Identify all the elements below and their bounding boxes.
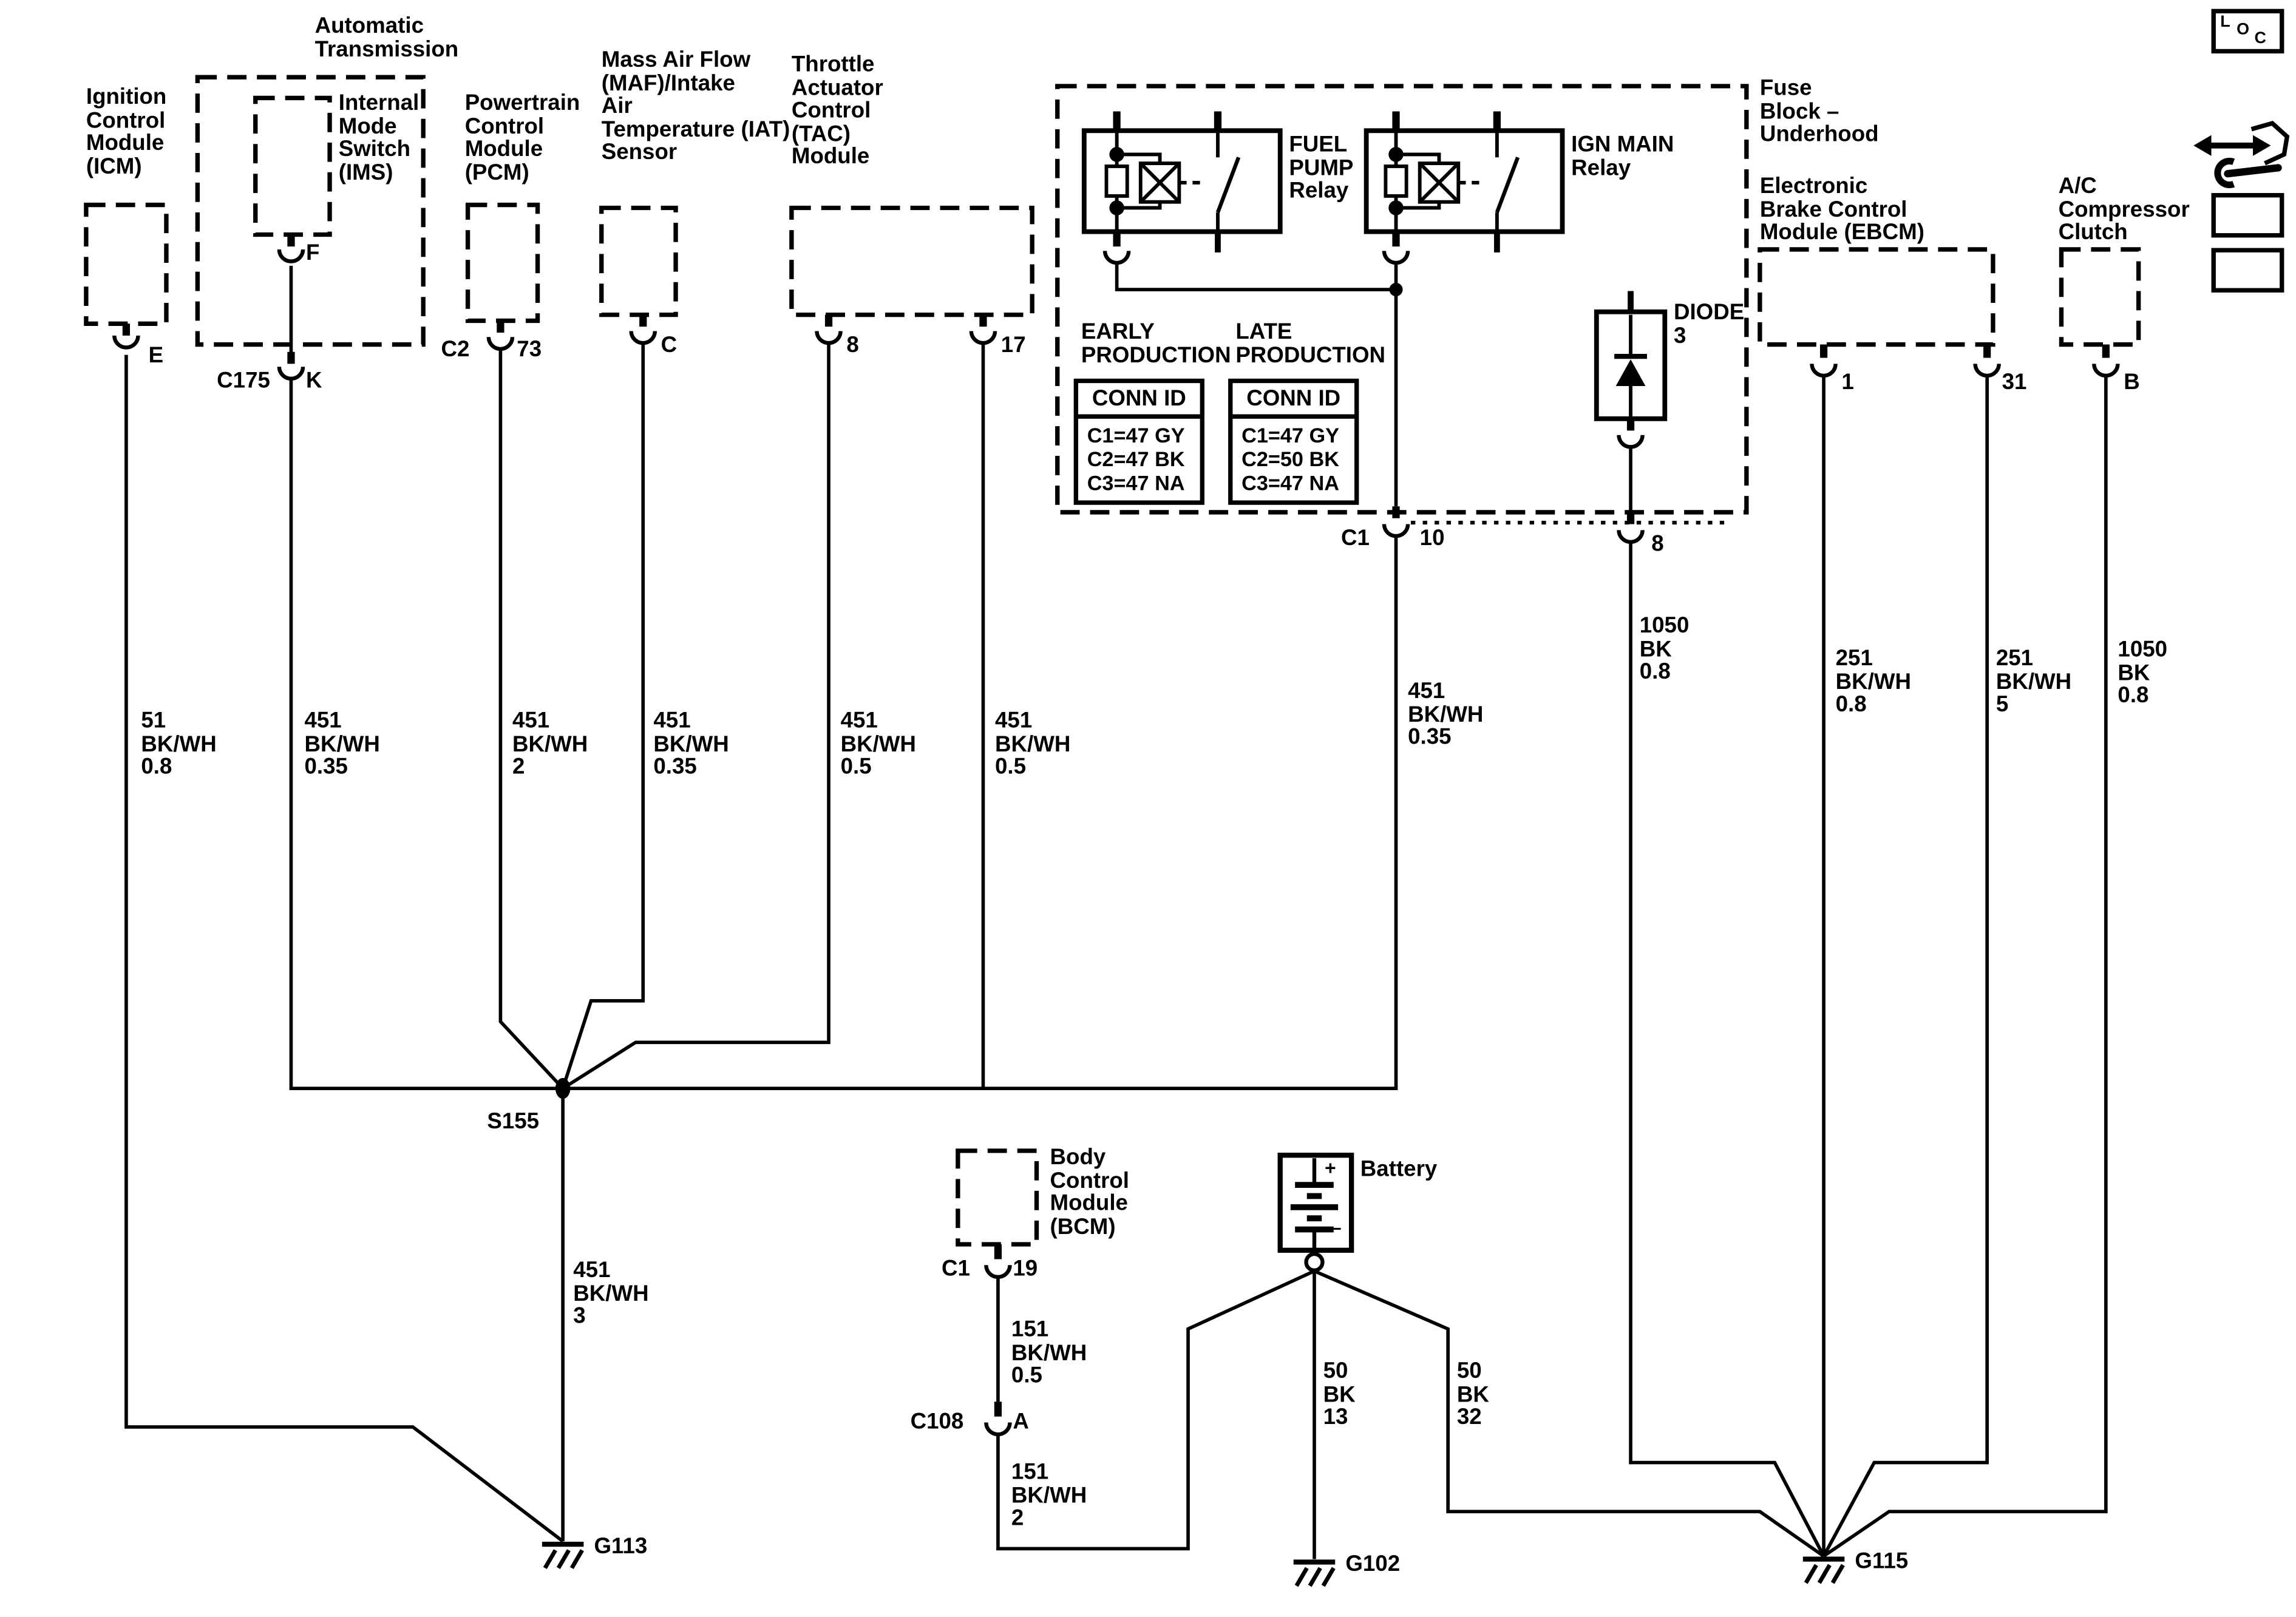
label-w-451-035-c1: 451 BK/WH 0.35 <box>1408 680 1483 749</box>
label-maf: Mass Air Flow (MAF)/Intake Air Temperatu… <box>602 49 790 164</box>
label-c1-fuse: C1 <box>1341 527 1370 550</box>
conn-id-row: C1=47 GY <box>1087 423 1200 447</box>
connector-fp-coil <box>1105 251 1129 263</box>
label-w-251-5: 251 BK/WH 5 <box>1996 648 2071 717</box>
label-ign-main-relay: IGN MAIN Relay <box>1571 134 1674 180</box>
conn-id-header: CONN ID <box>1078 383 1200 419</box>
label-ims: Internal Mode Switch (IMS) <box>339 92 419 185</box>
label-c175: C175 <box>217 370 270 393</box>
double-arrow-left-head <box>2193 135 2211 156</box>
relay-coil-resistor <box>1385 166 1406 196</box>
label-loc-l: L <box>2220 13 2230 31</box>
ign-main-relay <box>1367 131 1563 231</box>
ac-clutch-box <box>2061 249 2138 345</box>
conn-id-table-early: CONN ID C1=47 GY C2=47 BK C3=47 NA <box>1074 379 1204 505</box>
battery-terminal <box>1306 1254 1323 1270</box>
label-c2: C2 <box>441 339 470 362</box>
forward-arrow-box[interactable] <box>2212 193 2284 237</box>
module-boxes <box>86 77 2139 1244</box>
battery-symbol <box>1280 1155 1351 1270</box>
label-w-50-13: 50 BK 13 <box>1323 1360 1356 1429</box>
maf-box <box>602 208 676 314</box>
back-arrow-box[interactable] <box>2212 248 2284 293</box>
wire-ebcm-31 <box>1824 374 1987 1556</box>
ims-box <box>256 98 330 234</box>
label-w-1050-08-diode: 1050 BK 0.8 <box>1640 615 1690 684</box>
bcm-box <box>958 1151 1037 1244</box>
relay-switch-stubs <box>1218 232 1497 253</box>
ground-g102 <box>1294 1562 1335 1586</box>
label-early-production: EARLY PRODUCTION <box>1081 320 1231 367</box>
wire-icm-ground <box>126 355 563 1542</box>
ground-g113 <box>542 1544 583 1568</box>
wire-ac-b <box>1824 374 2106 1556</box>
label-pin-a: A <box>1013 1411 1029 1434</box>
label-pin-10: 10 <box>1420 527 1445 550</box>
label-g113: G113 <box>594 1535 648 1558</box>
splice-s155-dot <box>556 1079 569 1098</box>
label-tac: Throttle Actuator Control (TAC) Module <box>792 53 883 169</box>
label-w-151-2: 151 BK/WH 2 <box>1011 1461 1087 1530</box>
label-w-451-035-maf: 451 BK/WH 0.35 <box>653 710 729 779</box>
label-battery: Battery <box>1360 1158 1437 1181</box>
conn-id-row: C3=47 NA <box>1241 470 1354 494</box>
label-w-51: 51 BK/WH 0.8 <box>141 710 216 779</box>
conn-id-row: C2=47 BK <box>1087 447 1200 470</box>
conn-id-row: C3=47 NA <box>1087 470 1200 494</box>
connector-c1-10 <box>1384 524 1408 537</box>
label-g115: G115 <box>1855 1550 1908 1573</box>
connector-c1-19 <box>986 1265 1010 1277</box>
label-auto-trans: Automatic Transmission <box>315 15 459 61</box>
connector-diode <box>1618 435 1642 447</box>
label-bcm: Body Control Module (BCM) <box>1050 1147 1129 1239</box>
label-fuse-block: Fuse Block – Underhood <box>1760 77 1879 146</box>
wire-fp-coil <box>1117 263 1396 290</box>
pcm-box <box>468 205 538 321</box>
label-s155: S155 <box>487 1111 539 1134</box>
connector-ac-b <box>2094 364 2118 376</box>
relay-coil-resistor <box>1106 166 1127 196</box>
label-w-251-08: 251 BK/WH 0.8 <box>1836 648 1911 717</box>
label-w-451-05-b: 451 BK/WH 0.5 <box>995 710 1070 779</box>
label-g102: G102 <box>1345 1553 1400 1576</box>
icm-box <box>86 205 166 324</box>
wire-batt-g115 <box>1314 1271 1824 1556</box>
label-late-production: LATE PRODUCTION <box>1235 320 1385 367</box>
label-diode: DIODE 3 <box>1674 302 1744 348</box>
service-icon <box>2193 123 2287 185</box>
label-w-451-05-a: 451 BK/WH 0.5 <box>841 710 916 779</box>
label-icm: Ignition Control Module (ICM) <box>86 86 166 178</box>
label-pin-8-diode: 8 <box>1651 533 1663 556</box>
label-w-1050-08-ac: 1050 BK 0.8 <box>2118 639 2167 708</box>
label-pcm: Powertrain Control Module (PCM) <box>465 92 580 185</box>
label-pin-73: 73 <box>517 339 542 362</box>
label-battery-plus: + <box>1325 1158 1336 1179</box>
connector-c2-73 <box>489 337 512 349</box>
label-w-451-2: 451 BK/WH 2 <box>512 710 588 779</box>
fuel-pump-relay <box>1084 131 1280 231</box>
conn-id-row: C1=47 GY <box>1241 423 1354 447</box>
connector-tac-17 <box>971 331 995 344</box>
label-pin-19: 19 <box>1013 1258 1038 1281</box>
connector-ebcm-31 <box>1975 364 1999 376</box>
label-pin-8-tac: 8 <box>846 334 858 357</box>
label-ebcm: Electronic Brake Control Module (EBCM) <box>1760 175 1924 245</box>
conn-id-row: C2=50 BK <box>1241 447 1354 470</box>
label-pin-f: F <box>306 242 319 265</box>
label-loc-o: O <box>2237 21 2249 38</box>
relay-wire-junction-dot <box>1390 283 1402 296</box>
wiring-svg <box>0 0 2296 1617</box>
label-pin-k: K <box>306 370 322 393</box>
ground-g115 <box>1803 1559 1844 1583</box>
connector-maf-c <box>631 331 655 344</box>
label-w-50-32: 50 BK 32 <box>1457 1360 1489 1429</box>
connector-f <box>279 249 303 262</box>
label-w-151-05: 151 BK/WH 0.5 <box>1011 1318 1087 1388</box>
connector-ign-coil <box>1384 251 1408 263</box>
connector-8 <box>1618 530 1642 542</box>
wrench-handle <box>2227 168 2278 174</box>
conn-id-header: CONN ID <box>1232 383 1354 419</box>
label-c1-bcm: C1 <box>942 1258 970 1281</box>
label-pin-e: E <box>149 345 164 368</box>
label-fuel-pump-relay: FUEL PUMP Relay <box>1289 134 1353 203</box>
wiring-diagram-page: CONN ID C1=47 GY C2=47 BK C3=47 NA CONN … <box>0 0 2296 1617</box>
label-pin-1: 1 <box>1841 371 1853 395</box>
connector-c175 <box>279 367 303 379</box>
diode-symbol <box>1597 291 1665 418</box>
conn-id-table-late: CONN ID C1=47 GY C2=50 BK C3=47 NA <box>1228 379 1359 505</box>
label-ac-clutch: A/C Compressor Clutch <box>2059 175 2190 245</box>
tac-box <box>792 208 1032 314</box>
label-w-451-3: 451 BK/WH 3 <box>573 1259 648 1328</box>
connector-e <box>114 336 138 348</box>
label-pin-31: 31 <box>2002 371 2027 395</box>
label-pin-c: C <box>661 334 678 357</box>
label-battery-minus: – <box>1331 1218 1342 1238</box>
wire-1050-ground <box>1631 540 1824 1556</box>
label-pin-17: 17 <box>1001 334 1026 357</box>
double-arrow-right-head <box>2253 135 2271 156</box>
ebcm-box <box>1760 249 1993 345</box>
label-c108: C108 <box>911 1411 964 1434</box>
connector-tac-8 <box>817 331 840 344</box>
connector-ebcm-1 <box>1812 364 1835 376</box>
label-loc-c: C <box>2254 30 2266 47</box>
label-pin-b: B <box>2124 371 2140 395</box>
label-w-451-035-ims: 451 BK/WH 0.35 <box>304 710 379 779</box>
connector-c108-a <box>986 1423 1010 1435</box>
